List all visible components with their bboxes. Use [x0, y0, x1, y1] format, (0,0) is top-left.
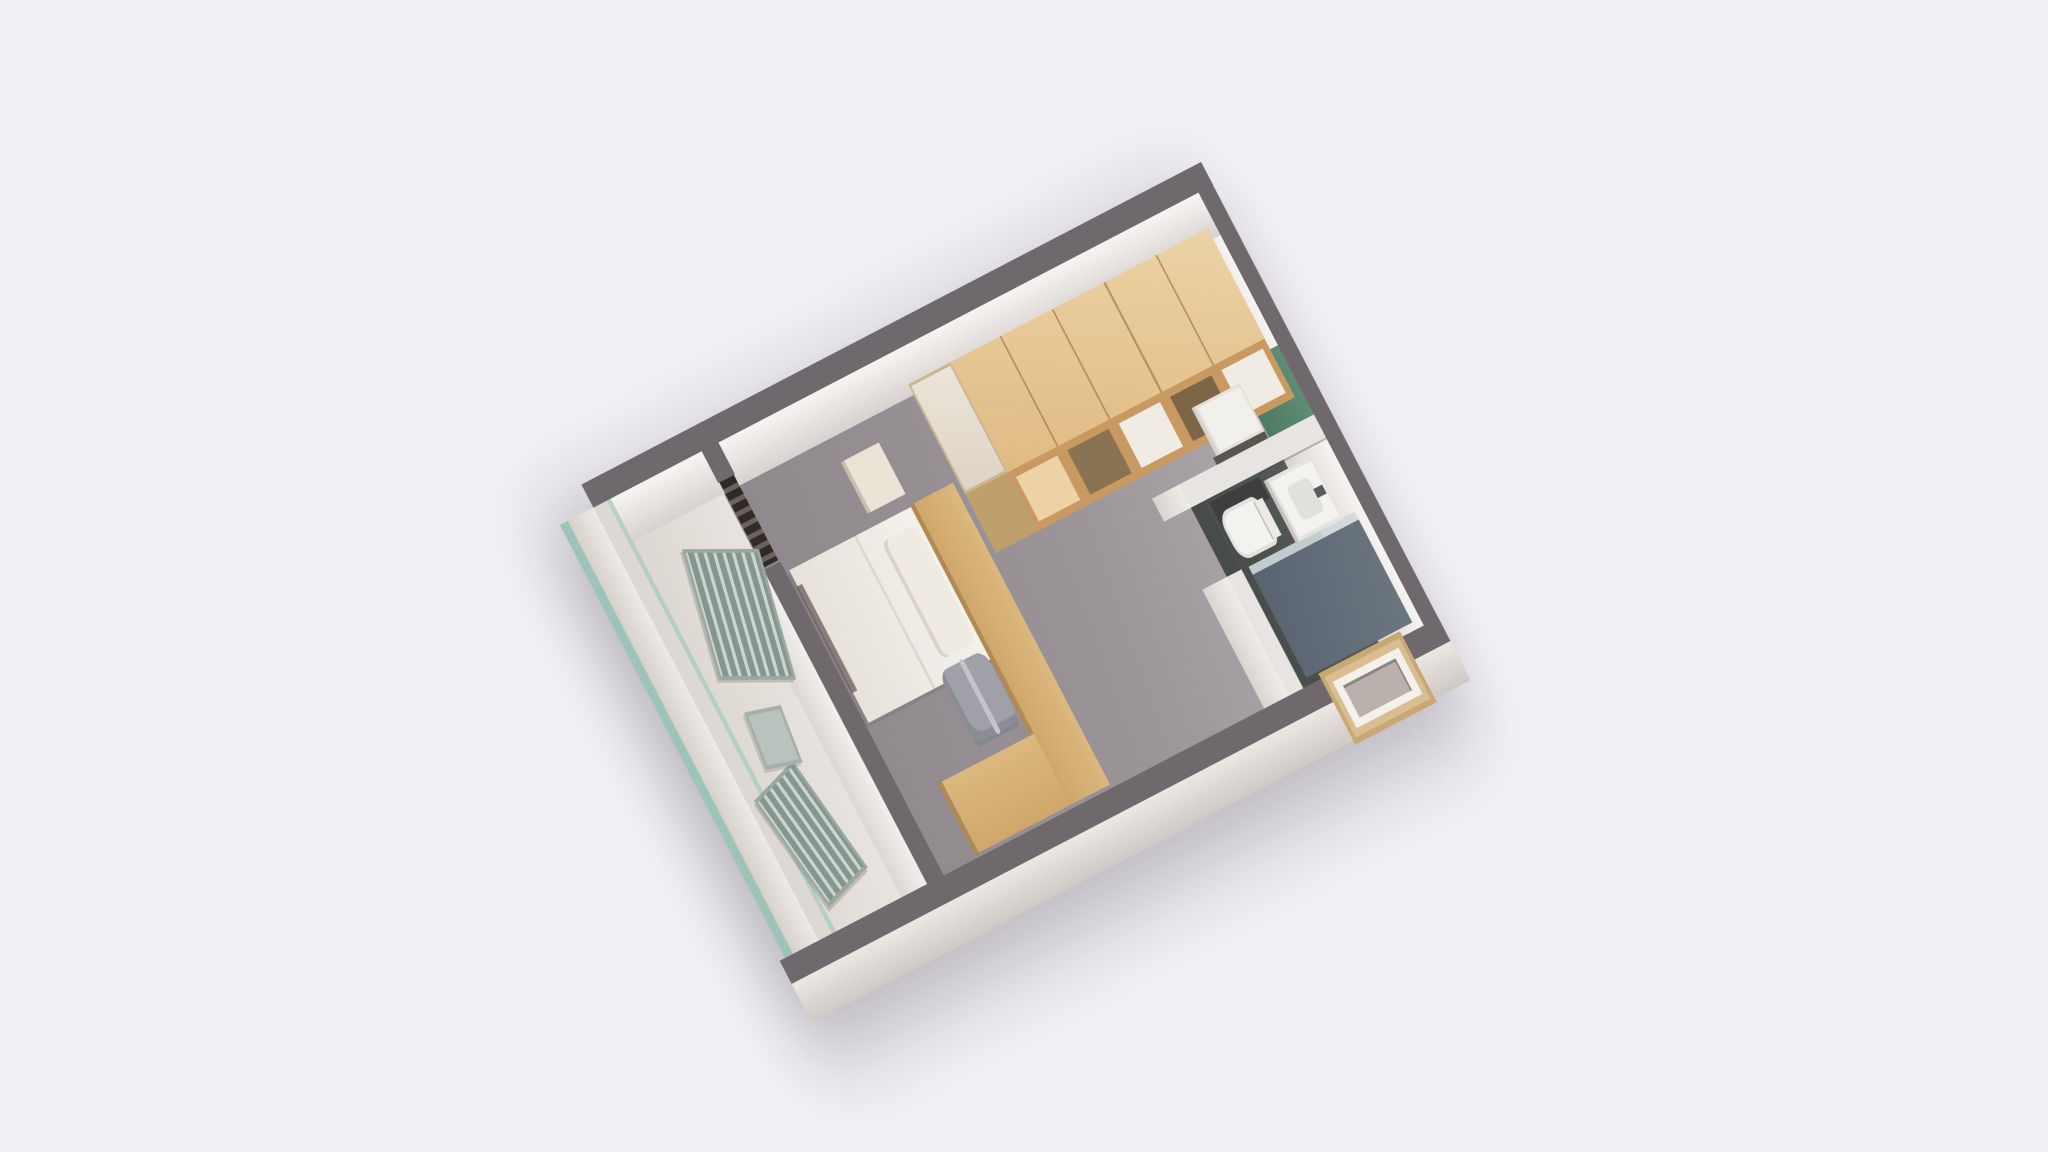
- wardrobe-cubby: [1067, 429, 1131, 495]
- sink-bowl: [1285, 476, 1325, 521]
- wardrobe-cubby: [1119, 402, 1183, 468]
- apartment-unit: [581, 162, 1450, 964]
- floorplan-3d-render: [0, 0, 2048, 1152]
